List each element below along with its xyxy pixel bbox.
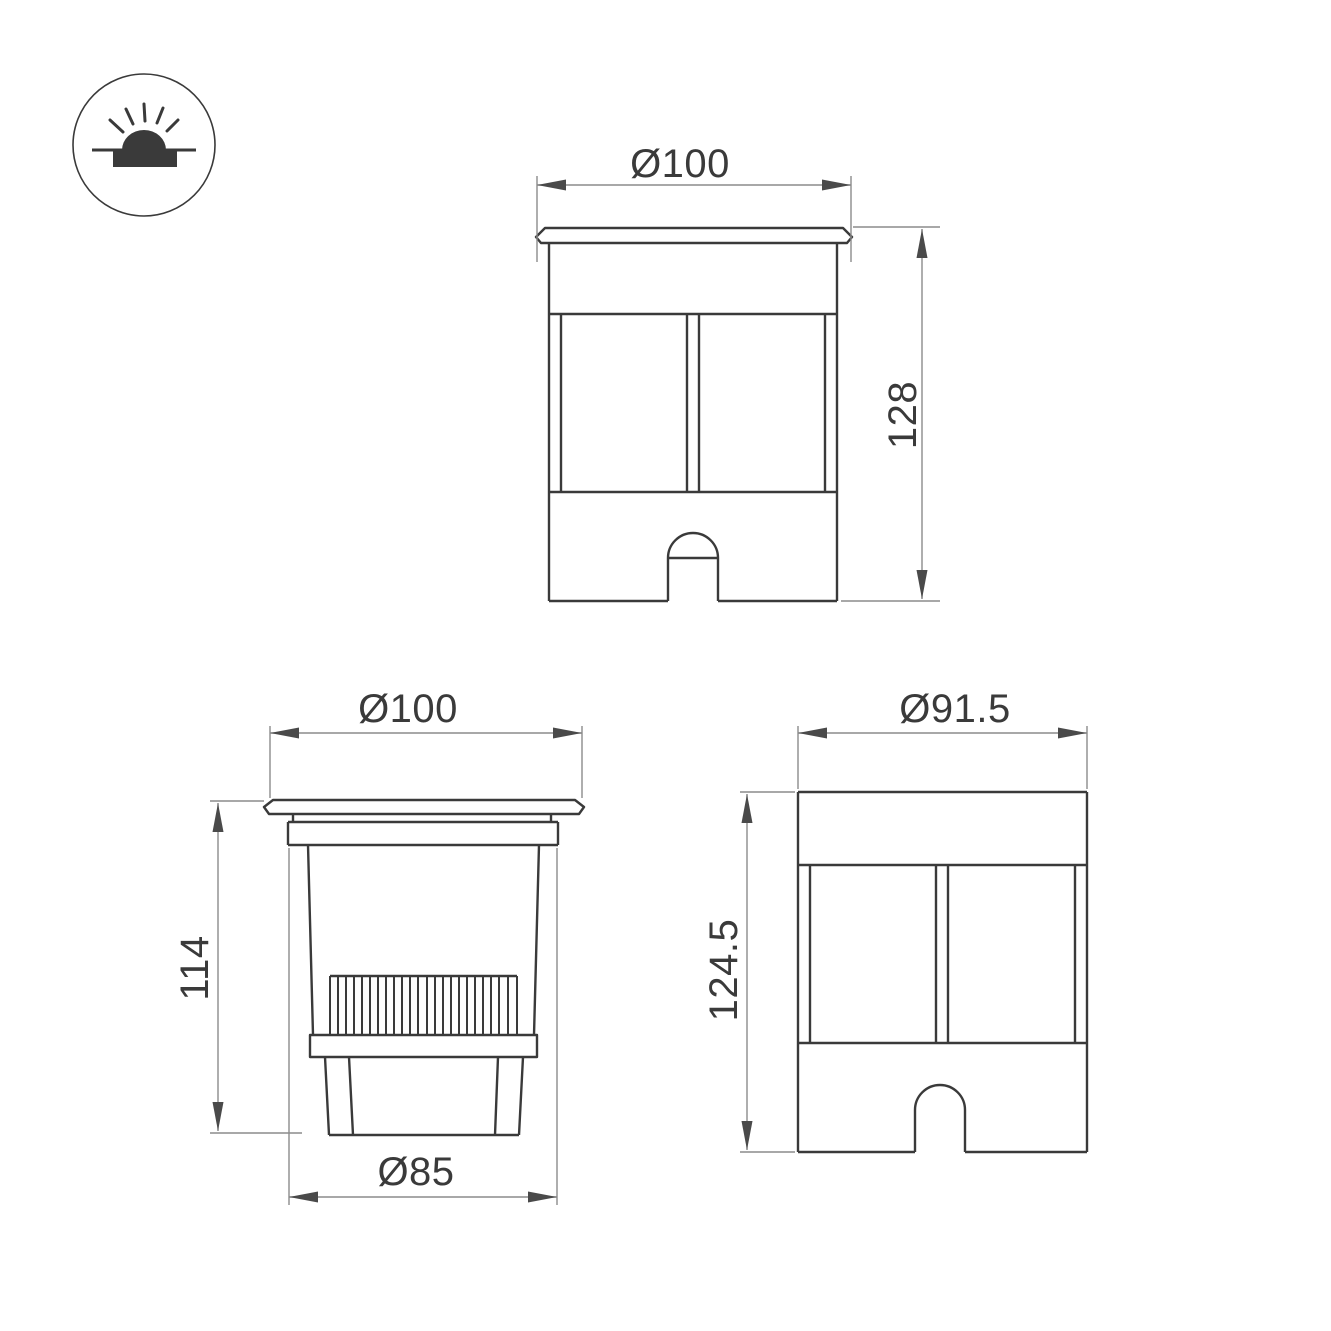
section-diameter-ext-lines — [270, 726, 582, 798]
section-diameter-label: Ø100 — [358, 687, 458, 731]
front-height-arrow-top — [917, 229, 928, 258]
side-cable-notch — [915, 1085, 965, 1152]
section-heatsink-fins — [330, 976, 517, 1035]
section-diameter-arrow-left — [270, 728, 299, 739]
drawing-svg: Ø100 128 — [0, 0, 1331, 1331]
side-diameter-ext-lines — [798, 726, 1087, 789]
side-body-bands — [798, 865, 1087, 1043]
section-view: Ø100 114 Ø85 — [173, 687, 584, 1205]
front-diameter-arrow-right — [822, 180, 851, 191]
front-view: Ø100 128 — [536, 142, 940, 601]
front-height-arrow-bottom — [917, 570, 928, 599]
side-diameter-arrow-left — [798, 728, 827, 739]
section-height-arrow-bottom — [213, 1102, 224, 1131]
side-diameter-label: Ø91.5 — [899, 687, 1010, 731]
section-heatsink-plate — [310, 1035, 537, 1057]
icon-light-rays — [110, 104, 178, 132]
section-height-label: 114 — [173, 935, 217, 1000]
front-cable-notch — [668, 533, 718, 601]
section-diameter-arrow-right — [553, 728, 582, 739]
side-height-ext-lines — [740, 792, 795, 1152]
side-height-label: 124.5 — [702, 919, 746, 1022]
front-height-label: 128 — [881, 381, 925, 449]
technical-drawing-page: Ø100 128 — [0, 0, 1331, 1331]
section-body-walls — [308, 845, 539, 1035]
side-view-dimensions: Ø91.5 124.5 — [702, 687, 1087, 1152]
section-collar — [288, 822, 558, 845]
section-height-arrow-top — [213, 803, 224, 832]
recessed-light-icon — [73, 74, 215, 216]
section-height-ext-lines — [210, 801, 302, 1133]
front-view-outline — [536, 228, 852, 601]
icon-lamp-dome — [122, 130, 166, 150]
section-base-housing — [325, 1057, 523, 1135]
front-body-walls — [549, 243, 837, 601]
section-base-arrow-left — [289, 1192, 318, 1203]
front-diameter-arrow-left — [537, 180, 566, 191]
section-flange — [264, 800, 584, 814]
section-view-dimensions: Ø100 114 Ø85 — [173, 687, 582, 1205]
section-view-outline — [264, 800, 584, 1135]
side-body-outline — [798, 792, 1087, 1152]
side-diameter-arrow-right — [1058, 728, 1087, 739]
front-window-frames — [561, 314, 825, 492]
side-height-arrow-bottom — [742, 1121, 753, 1150]
section-base-arrow-right — [528, 1192, 557, 1203]
side-view: Ø91.5 124.5 — [702, 687, 1087, 1152]
front-body-bands — [549, 314, 837, 492]
side-view-outline — [798, 792, 1087, 1152]
section-base-diameter-label: Ø85 — [377, 1150, 454, 1194]
front-flange — [536, 228, 852, 243]
front-view-dimensions: Ø100 128 — [537, 142, 940, 601]
icon-body — [113, 150, 177, 167]
side-height-arrow-top — [742, 794, 753, 823]
side-window-frames — [810, 865, 1075, 1043]
front-diameter-ext-lines — [537, 176, 851, 262]
front-diameter-label: Ø100 — [630, 142, 730, 186]
